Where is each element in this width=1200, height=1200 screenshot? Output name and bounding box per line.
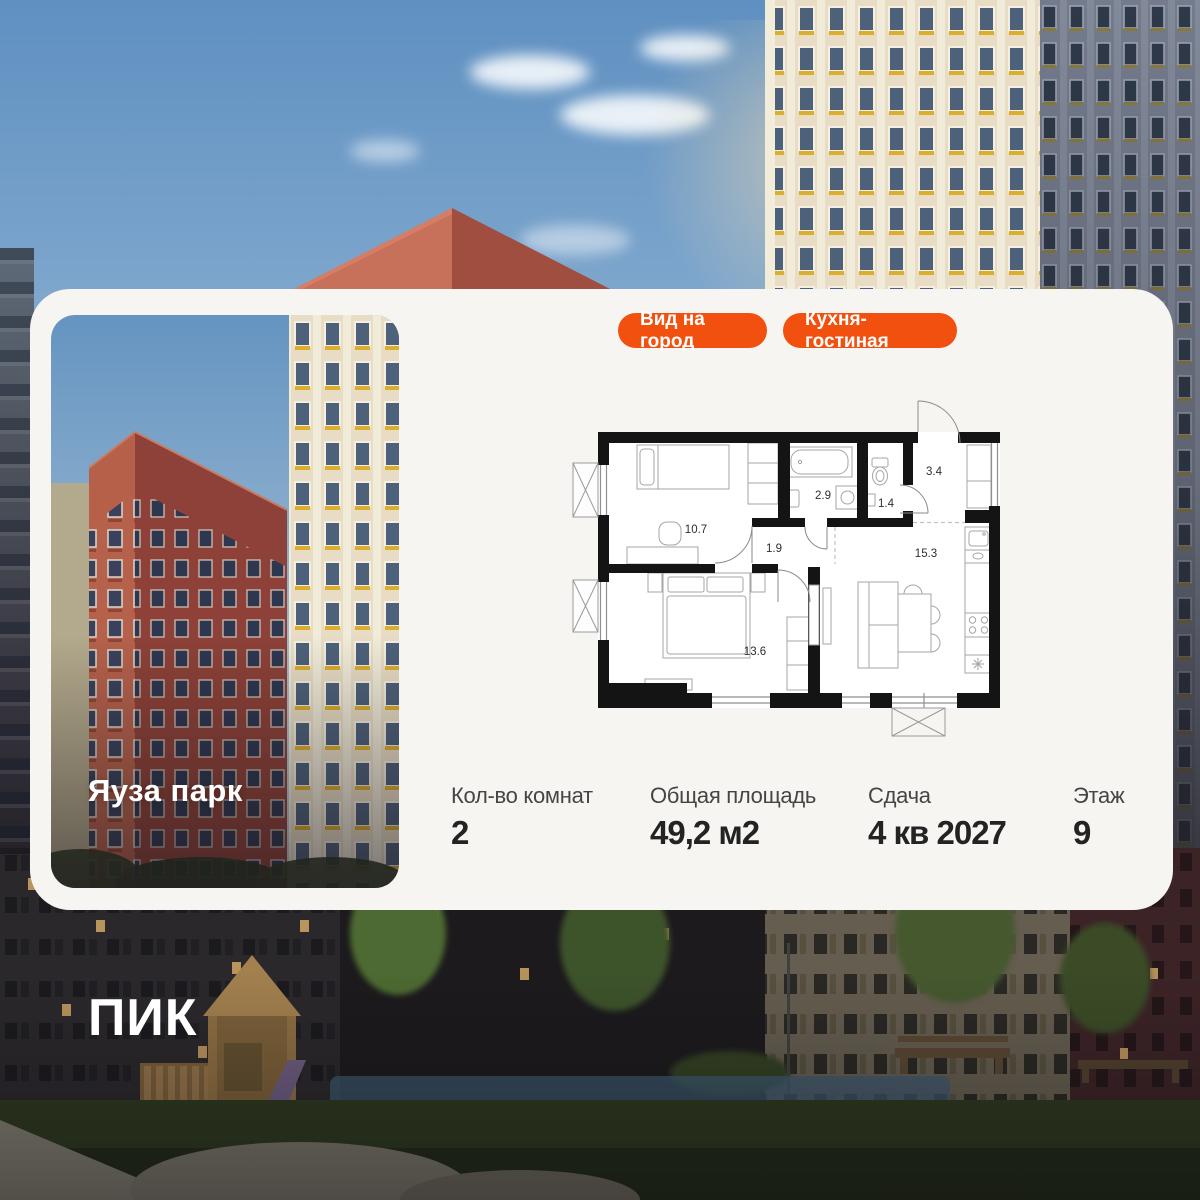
stat-area: Общая площадь 49,2 м2: [650, 783, 816, 852]
stat-completion-label: Сдача: [868, 783, 1006, 809]
stat-rooms-label: Кол-во комнат: [451, 783, 593, 809]
pik-logo: ПИК: [88, 988, 198, 1048]
stat-completion-value: 4 кв 2027: [868, 814, 1006, 852]
room-label-corridor: 1.9: [766, 543, 782, 555]
stat-rooms-value: 2: [451, 814, 593, 852]
stat-floor-label: Этаж: [1073, 783, 1124, 809]
cloud: [470, 55, 590, 89]
cloud: [560, 95, 710, 135]
room-label-bedroom2: 13.6: [744, 646, 766, 658]
listing-card: Яуза парк Вид на город Кухня-гостиная: [30, 289, 1173, 910]
room-label-bathroom: 2.9: [815, 490, 831, 502]
floor-plan: 10.7 2.9 1.4 3.4 1.9 15.3 13.6: [560, 396, 1010, 742]
project-name: Яуза парк: [88, 773, 243, 809]
room-label-wc: 1.4: [878, 498, 895, 510]
stat-area-label: Общая площадь: [650, 783, 816, 809]
balcony: [892, 708, 945, 736]
stat-completion: Сдача 4 кв 2027: [868, 783, 1006, 852]
stat-floor-value: 9: [1073, 814, 1124, 852]
cloud: [640, 35, 730, 61]
badge-view-label: Вид на город: [640, 309, 745, 353]
project-photo[interactable]: Яуза парк: [51, 315, 399, 888]
stat-floor: Этаж 9: [1073, 783, 1124, 852]
shafts: [573, 463, 598, 632]
stat-rooms: Кол-во комнат 2: [451, 783, 593, 852]
beige-tower: [765, 0, 1052, 292]
badge-view[interactable]: Вид на город: [618, 313, 767, 348]
left-building: [0, 248, 34, 868]
badge-kitchen-living[interactable]: Кухня-гостиная: [783, 313, 957, 348]
red-tower-top: [270, 200, 630, 295]
stat-area-value: 49,2 м2: [650, 814, 816, 852]
cloud: [350, 140, 420, 162]
room-label-kitchen-living: 15.3: [915, 548, 937, 560]
room-label-bedroom1: 10.7: [685, 524, 707, 536]
room-label-hallway: 3.4: [926, 466, 943, 478]
badge-kitchen-living-label: Кухня-гостиная: [805, 309, 935, 353]
